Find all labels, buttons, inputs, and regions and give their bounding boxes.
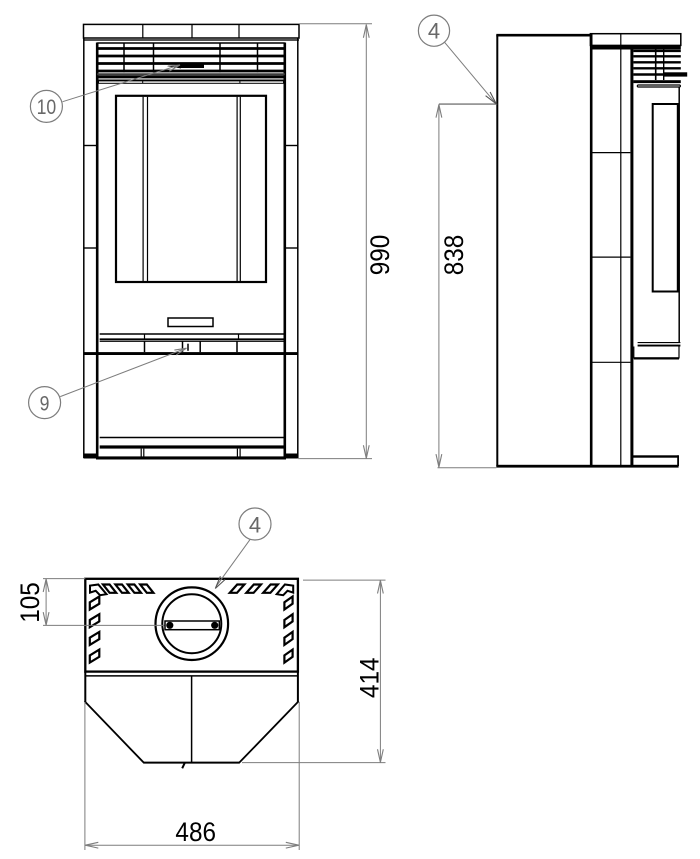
svg-text:105: 105 <box>16 582 45 623</box>
svg-text:486: 486 <box>175 818 216 847</box>
svg-text:10: 10 <box>37 96 57 120</box>
svg-text:9: 9 <box>40 392 50 416</box>
svg-text:838: 838 <box>440 235 469 276</box>
svg-text:4: 4 <box>249 512 261 537</box>
svg-text:414: 414 <box>355 657 384 698</box>
svg-text:4: 4 <box>428 19 440 44</box>
svg-text:990: 990 <box>366 235 395 276</box>
